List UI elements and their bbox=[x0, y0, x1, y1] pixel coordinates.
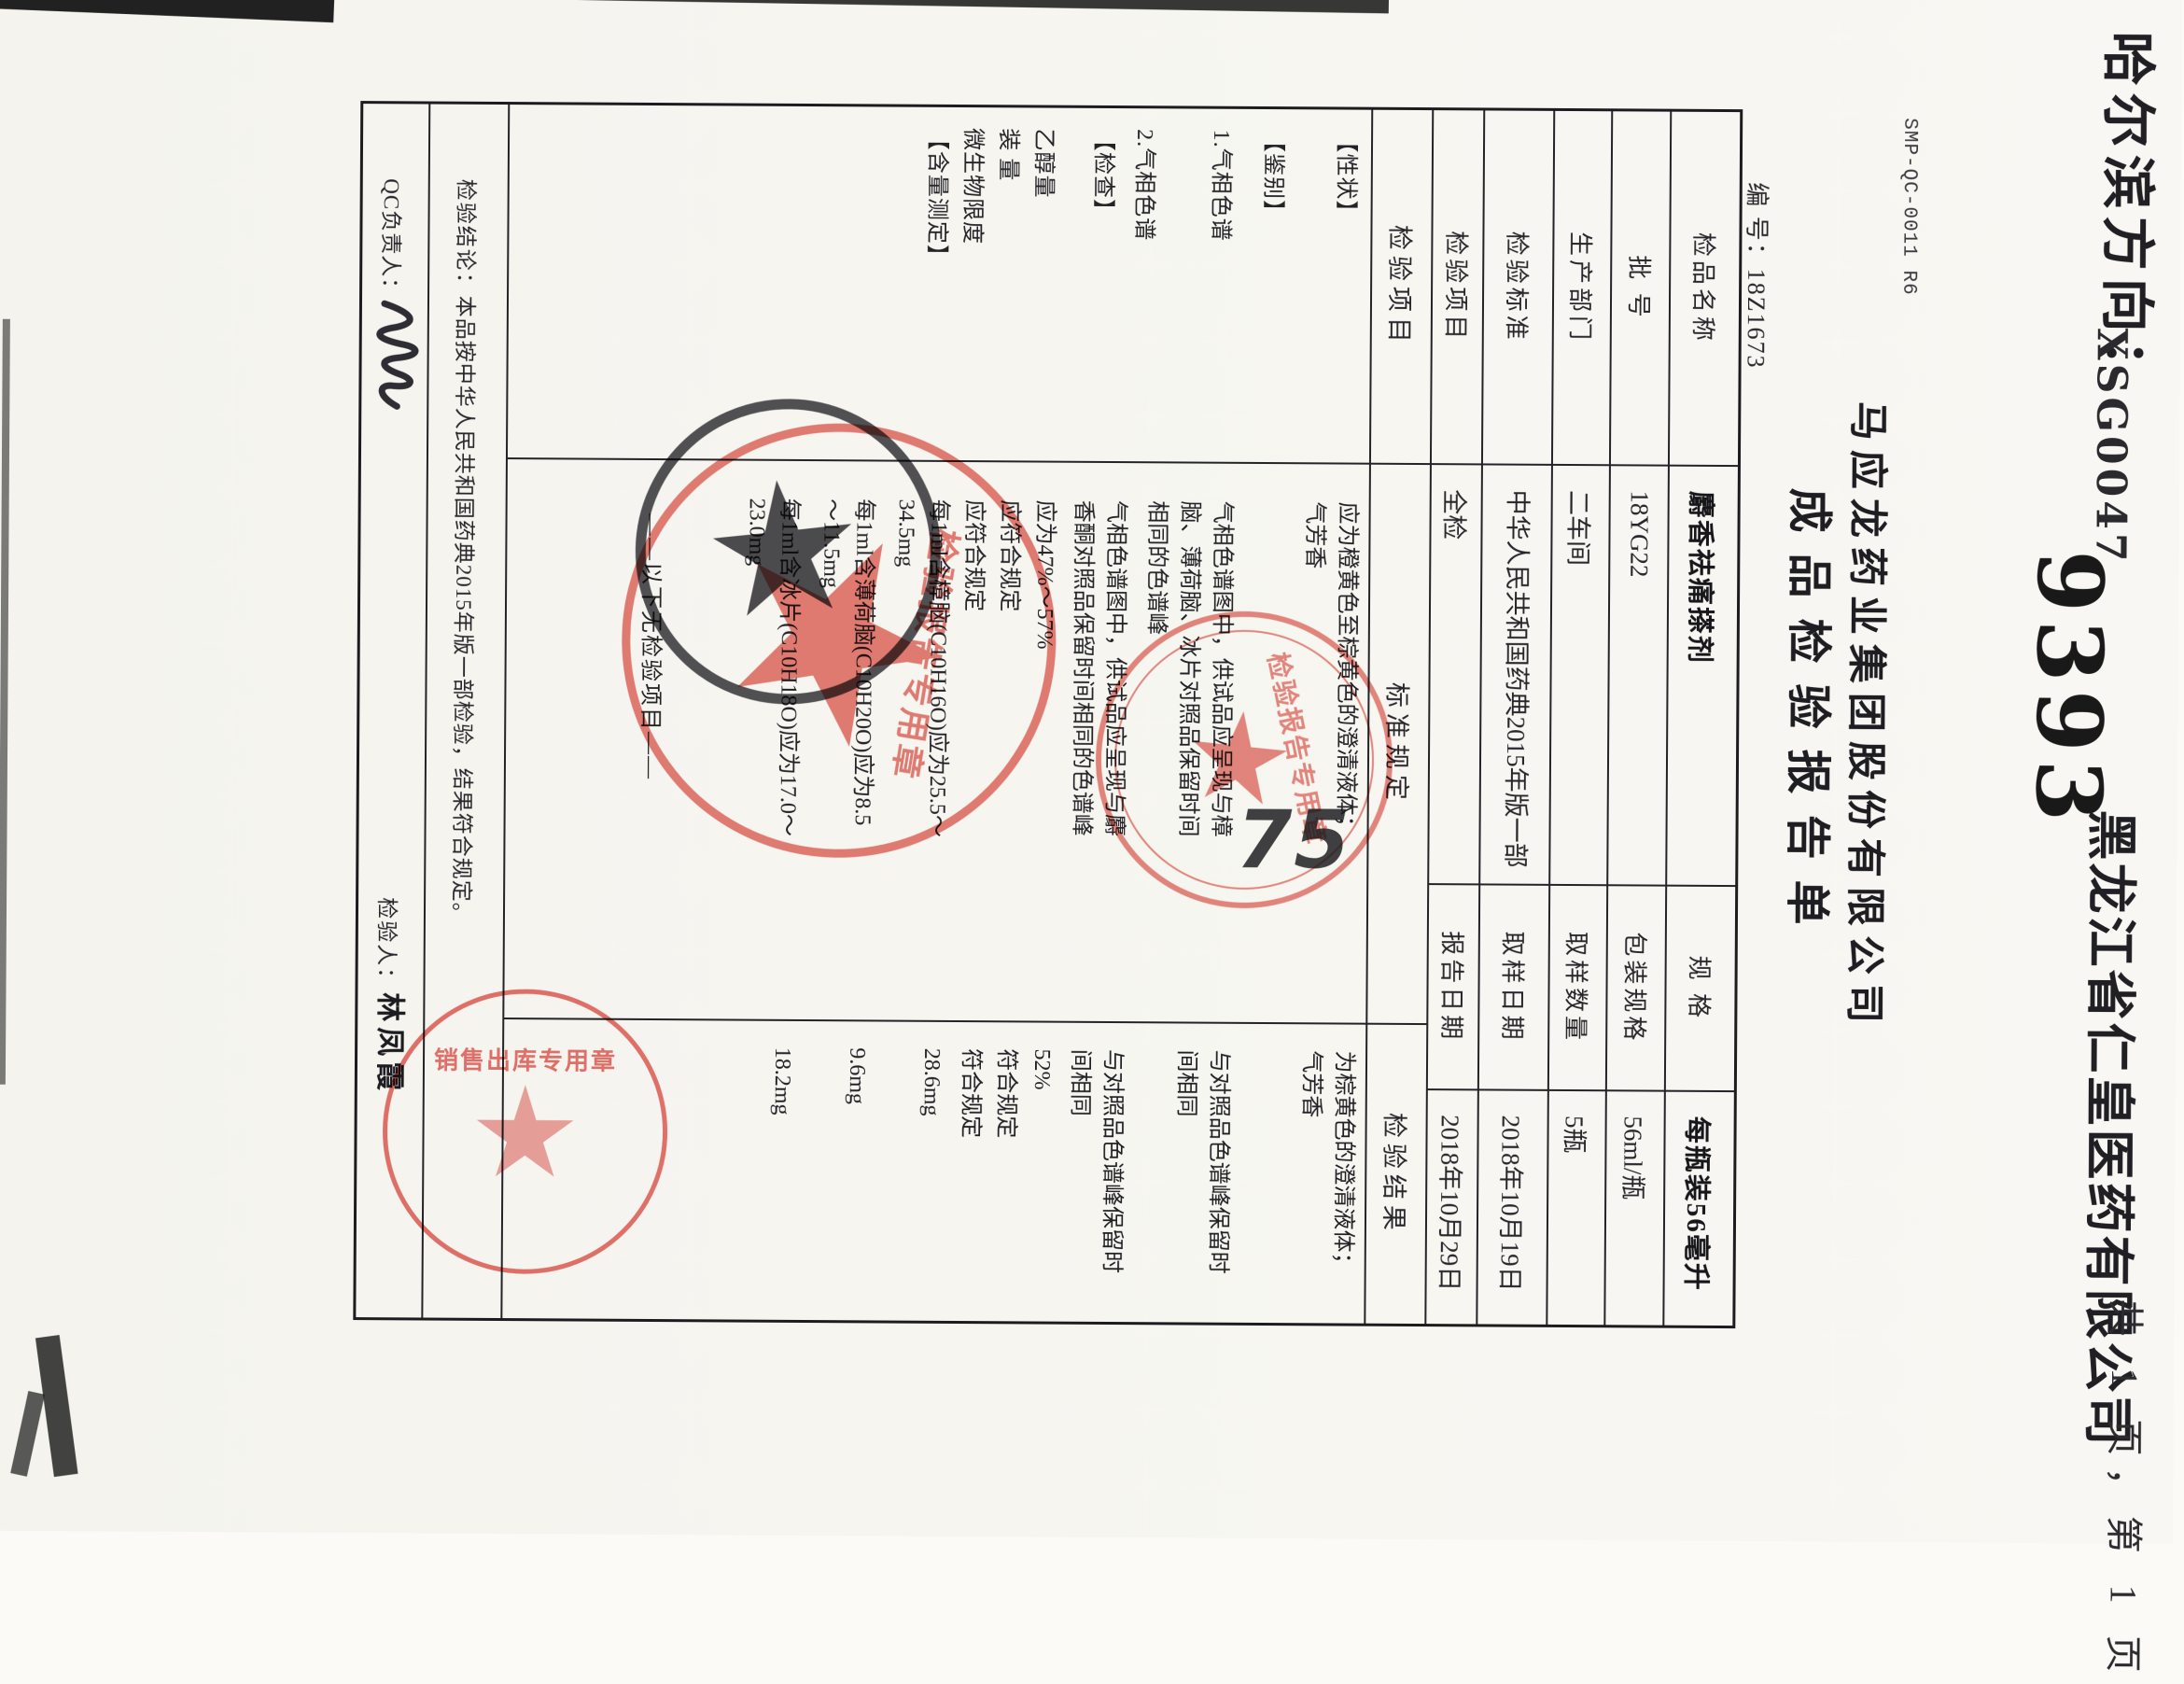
result-camphor: 28.6mg bbox=[914, 1048, 947, 1293]
report-number: 编 号：18Z1673 bbox=[1741, 182, 1776, 370]
info-label-standard: 检验标准 bbox=[1483, 110, 1553, 465]
receiver-seal: 黑龙江九州通医药有限公司 销售出库专用章 bbox=[375, 981, 676, 1282]
scan-artifact bbox=[10, 1391, 45, 1477]
table-row: 检验项目 全检 报告日期 2018年10月29日 bbox=[1424, 110, 1483, 1324]
test-item-assay: 【含量测定】 bbox=[923, 128, 957, 268]
test-item-checks: 【检查】 bbox=[1090, 129, 1124, 222]
test-item-column: 【性状】 【鉴别】 1.气相色谱 2.气相色谱 【检查】 乙醇量 装 量 微生物… bbox=[508, 105, 1371, 465]
handwritten-number: 75 bbox=[1236, 793, 1349, 888]
info-label-sample-date: 取样日期 bbox=[1479, 885, 1548, 1090]
info-value-batch: 18YG22 bbox=[1608, 466, 1668, 886]
test-item-gc2: 2.气相色谱 bbox=[1130, 129, 1164, 241]
scan-artifact bbox=[0, 319, 10, 1085]
table-row: 检品名称 麝香祛痛搽剂 规 格 每瓶装56毫升 bbox=[1662, 112, 1740, 1326]
scanned-page: 哈尔滨方向： XSG0047 9393 黑龙江省仁皇医药有限公司 共 1 页，第… bbox=[0, 0, 2182, 1544]
info-value-test-scope: 全检 bbox=[1429, 465, 1481, 885]
result-gc1: 与对照品色谱峰保留时间相同 bbox=[1169, 1049, 1235, 1294]
conclusion-text: 本品按中华人民共和国药典2015年版一部检验，结果符合规定。 bbox=[448, 296, 483, 925]
column-header-result: 检验结果 bbox=[1365, 1025, 1426, 1324]
report-title: 成品检验报告单 bbox=[1776, 109, 1849, 1323]
test-item-ethanol: 乙醇量 bbox=[1030, 128, 1063, 198]
result-microbial: 符合规定 bbox=[953, 1048, 987, 1293]
info-label-spec: 规 格 bbox=[1666, 887, 1735, 1092]
info-value-spec: 每瓶装56毫升 bbox=[1664, 1092, 1734, 1326]
seal-caption: 销售出库专用章 bbox=[376, 1041, 675, 1077]
info-label-test-scope: 检验项目 bbox=[1432, 110, 1483, 465]
info-value-sample-qty: 5瓶 bbox=[1547, 1091, 1605, 1325]
result-fill-volume: 符合规定 bbox=[988, 1048, 1022, 1293]
info-value-standard: 中华人民共和国药典2015年版一部 bbox=[1480, 465, 1551, 885]
page-count: 共 1 页，第 1 页 bbox=[2099, 1298, 2156, 1683]
info-label-sample-qty: 取样数量 bbox=[1549, 886, 1606, 1091]
manufacturer-seal-upper: 马应龙药业集团股份有限公司 检验报告专用章 bbox=[1062, 578, 1426, 942]
qc-signature bbox=[367, 296, 426, 436]
table-row: 检验标准 中华人民共和国药典2015年版一部 取样日期 2018年10月19日 bbox=[1476, 110, 1553, 1324]
test-item-fill-volume: 装 量 bbox=[995, 128, 1028, 181]
test-item-gc1: 1.气相色谱 bbox=[1207, 130, 1240, 242]
info-label-pack: 包装规格 bbox=[1607, 886, 1665, 1091]
info-value-pack: 56ml/瓶 bbox=[1605, 1091, 1664, 1325]
test-item-identification: 【鉴别】 bbox=[1260, 130, 1294, 223]
inspector-label: 检验人： bbox=[372, 897, 405, 990]
test-item-microbial: 微生物限度 bbox=[959, 128, 992, 245]
fax-waybill-number: 9393 bbox=[2016, 550, 2123, 830]
info-value-sample-date: 2018年10月19日 bbox=[1477, 1090, 1547, 1324]
info-label-batch: 批 号 bbox=[1611, 111, 1670, 466]
table-row: 生产部门 二车间 取样数量 5瓶 bbox=[1546, 111, 1611, 1325]
info-value-department: 二车间 bbox=[1550, 466, 1609, 886]
info-value-report-date: 2018年10月29日 bbox=[1426, 1090, 1477, 1324]
column-header-item: 检验项目 bbox=[1371, 110, 1432, 465]
scan-artifact bbox=[567, 0, 1389, 13]
result-ethanol: 52% bbox=[1024, 1048, 1057, 1293]
qc-manager-label: QC负责人： bbox=[377, 178, 410, 300]
result-borneol: 18.2mg bbox=[764, 1047, 798, 1292]
info-label-product: 检品名称 bbox=[1670, 112, 1740, 467]
fax-waybill-code: XSG0047 bbox=[2086, 328, 2135, 565]
report-number-label: 编 号： bbox=[1743, 182, 1771, 269]
conclusion-label: 检验结论： bbox=[453, 179, 485, 296]
table-row: 批 号 18YG22 包装规格 56ml/瓶 bbox=[1603, 111, 1670, 1325]
report-number-value: 18Z1673 bbox=[1743, 269, 1771, 370]
result-gc2: 与对照品色谱峰保留时间相同 bbox=[1062, 1049, 1128, 1294]
info-label-report-date: 报告日期 bbox=[1428, 885, 1478, 1090]
info-value-product: 麝香祛痛搽剂 bbox=[1667, 467, 1738, 887]
test-item-character: 【性状】 bbox=[1333, 130, 1366, 223]
scan-artifact bbox=[0, 0, 334, 22]
info-label-department: 生产部门 bbox=[1553, 111, 1611, 466]
result-menthol: 9.6mg bbox=[839, 1047, 873, 1292]
result-character: 为棕黄色的澄清液体；气芳香 bbox=[1294, 1050, 1360, 1295]
